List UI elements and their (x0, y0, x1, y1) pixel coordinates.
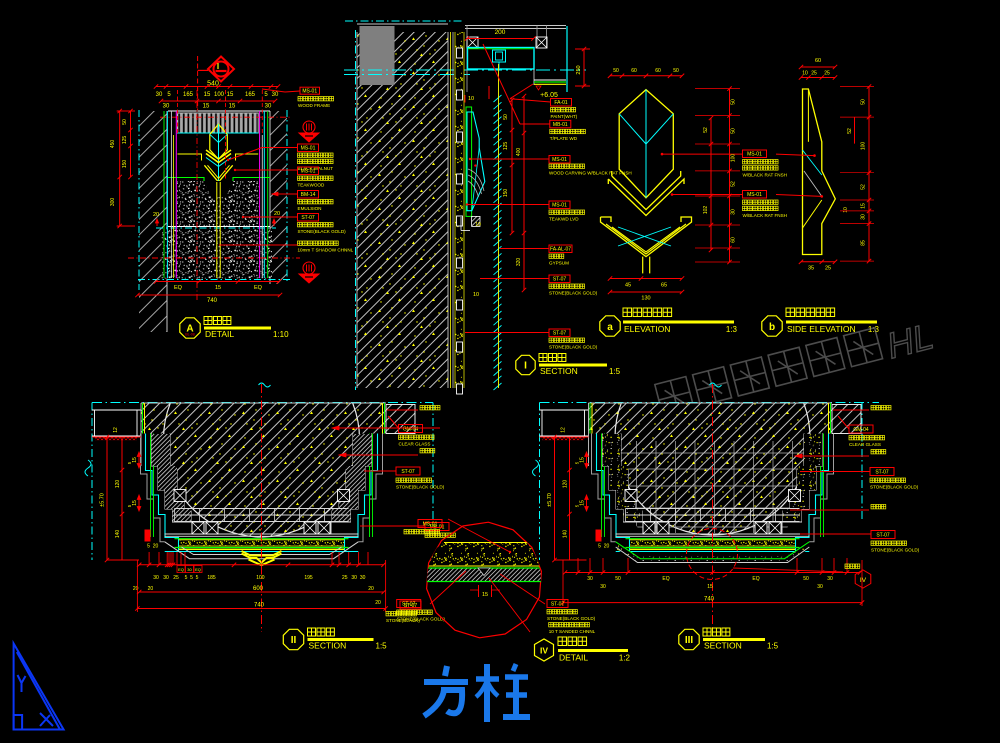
svg-text:50: 50 (803, 576, 809, 582)
svg-text:EQ: EQ (752, 576, 759, 582)
svg-text:30: 30 (156, 92, 163, 98)
svg-text:600: 600 (253, 586, 264, 592)
svg-text:MS-01: MS-01 (747, 192, 762, 198)
svg-text:15: 15 (132, 457, 138, 463)
svg-text:ST-07: ST-07 (401, 469, 415, 475)
svg-text:300: 300 (110, 198, 116, 207)
svg-text:60: 60 (815, 58, 821, 64)
svg-text:30: 30 (861, 214, 867, 220)
svg-text:MS-01: MS-01 (552, 157, 567, 163)
svg-text:1:2: 1:2 (619, 654, 631, 663)
svg-text:25: 25 (824, 71, 830, 77)
svg-text:15: 15 (229, 104, 236, 110)
svg-text:EQ: EQ (662, 576, 669, 582)
svg-text:ST-07: ST-07 (875, 470, 889, 476)
svg-text:GM-04: GM-04 (853, 427, 869, 433)
svg-text:+6.05: +6.05 (540, 92, 558, 99)
svg-text:140: 140 (563, 530, 569, 539)
svg-text:STONE(BLACK GOLD): STONE(BLACK GOLD) (871, 548, 920, 553)
svg-text:15: 15 (204, 92, 211, 98)
svg-text:50: 50 (673, 68, 679, 74)
svg-text:ST-07: ST-07 (551, 602, 565, 608)
svg-text:30: 30 (163, 575, 169, 581)
svg-text:20: 20 (604, 544, 610, 550)
svg-text:125: 125 (503, 142, 509, 151)
svg-text:30: 30 (351, 575, 357, 581)
svg-text:ST-07: ST-07 (553, 331, 567, 337)
svg-text:50: 50 (615, 576, 621, 582)
svg-text:30: 30 (817, 584, 823, 590)
svg-text:TEAKWOOD: TEAKWOOD (298, 183, 325, 188)
svg-text:185: 185 (207, 575, 216, 581)
svg-text:12: 12 (561, 427, 567, 433)
svg-text:CLEAR GLASS: CLEAR GLASS (849, 442, 881, 447)
svg-text:STONE(BLACK GOLD): STONE(BLACK GOLD) (549, 291, 598, 296)
svg-text:FA-01: FA-01 (554, 100, 568, 106)
svg-text:III: III (685, 635, 694, 646)
svg-text:120: 120 (115, 480, 121, 489)
svg-text:100: 100 (256, 575, 265, 581)
svg-text:200: 200 (495, 29, 506, 36)
svg-text:15: 15 (707, 584, 713, 590)
svg-text:b: b (769, 322, 775, 333)
svg-text:1:5: 1:5 (376, 642, 388, 651)
svg-text:30: 30 (600, 584, 606, 590)
svg-text:30: 30 (187, 567, 192, 572)
svg-text:10 T SANDED CHNNL: 10 T SANDED CHNNL (549, 629, 596, 634)
svg-text:MS-01: MS-01 (301, 169, 316, 175)
svg-text:ST-07: ST-07 (876, 533, 890, 539)
svg-text:MS-01: MS-01 (423, 522, 438, 528)
svg-text:IV: IV (540, 646, 548, 656)
svg-text:WOOD CARVING W/BLACK RAT FNSH: WOOD CARVING W/BLACK RAT FNSH (549, 171, 632, 176)
svg-text:50: 50 (503, 114, 509, 120)
svg-text:100: 100 (861, 142, 867, 151)
svg-text:52: 52 (731, 181, 737, 187)
svg-text:15: 15 (580, 500, 586, 506)
svg-text:20: 20 (375, 600, 381, 606)
svg-text:52: 52 (861, 184, 867, 190)
svg-text:5: 5 (598, 544, 601, 550)
svg-text:±5.70: ±5.70 (547, 493, 553, 507)
svg-text:ST-07: ST-07 (301, 215, 315, 221)
svg-text:±5.70: ±5.70 (100, 493, 106, 507)
svg-text:ELEVATION: ELEVATION (624, 324, 670, 334)
svg-text:SIDE ELEVATION: SIDE ELEVATION (787, 324, 856, 334)
svg-text:25: 25 (811, 71, 817, 77)
svg-text:CLEAR GLASS: CLEAR GLASS (399, 442, 431, 447)
svg-text:52: 52 (703, 127, 709, 133)
svg-text:100: 100 (214, 92, 225, 98)
svg-text:50: 50 (731, 128, 737, 134)
svg-text:DETAIL: DETAIL (559, 653, 588, 663)
svg-text:15: 15 (580, 457, 586, 463)
svg-text:10mm T SHADOW CHNNL: 10mm T SHADOW CHNNL (298, 248, 354, 253)
svg-text:30: 30 (731, 209, 737, 215)
svg-text:50: 50 (861, 99, 867, 105)
svg-text:10: 10 (475, 222, 481, 228)
svg-text:5: 5 (147, 544, 150, 550)
svg-text:MS-01: MS-01 (552, 203, 567, 209)
svg-text:20: 20 (368, 586, 374, 592)
svg-text:I: I (524, 361, 527, 372)
svg-text:250: 250 (576, 65, 582, 74)
svg-text:35: 35 (808, 266, 814, 272)
svg-text:15: 15 (861, 203, 867, 209)
svg-text:740: 740 (207, 298, 218, 304)
svg-text:30: 30 (587, 576, 593, 582)
svg-text:12: 12 (113, 427, 119, 433)
svg-text:15: 15 (227, 92, 234, 98)
svg-text:120: 120 (563, 480, 569, 489)
svg-text:DETAIL: DETAIL (205, 329, 234, 339)
svg-text:TEAKWD LVD: TEAKWD LVD (549, 217, 579, 222)
svg-text:STONE(BLACK): STONE(BLACK) (386, 618, 420, 623)
svg-text:20: 20 (153, 544, 159, 550)
svg-text:STONE(BLACK GOLD): STONE(BLACK GOLD) (547, 616, 596, 621)
svg-text:140: 140 (115, 530, 121, 539)
svg-text:20: 20 (148, 586, 154, 592)
svg-text:10: 10 (843, 207, 849, 213)
svg-text:MS-01: MS-01 (302, 88, 317, 94)
svg-text:1:5: 1:5 (767, 642, 779, 651)
svg-text:195: 195 (304, 575, 313, 581)
svg-text:PAINT(WHT): PAINT(WHT) (551, 114, 578, 119)
svg-text:EQ: EQ (178, 567, 184, 572)
svg-text:150: 150 (122, 160, 128, 169)
svg-text:SECTION: SECTION (309, 641, 347, 651)
svg-text:125: 125 (122, 136, 128, 145)
svg-text:30: 30 (272, 92, 279, 98)
svg-text:T/PLATE WD: T/PLATE WD (550, 136, 578, 141)
svg-text:ST-07: ST-07 (404, 603, 418, 609)
svg-text:EQ: EQ (195, 567, 201, 572)
svg-text:10: 10 (473, 292, 479, 298)
svg-text:SECTION: SECTION (540, 366, 578, 376)
svg-text:30: 30 (153, 575, 159, 581)
svg-text:5: 5 (196, 575, 199, 581)
svg-text:50: 50 (613, 68, 619, 74)
svg-text:IV: IV (860, 577, 867, 584)
svg-text:60: 60 (731, 237, 737, 243)
svg-text:STONE(BLACK GOLD): STONE(BLACK GOLD) (870, 485, 919, 490)
svg-text:150: 150 (503, 189, 509, 198)
svg-text:740: 740 (254, 603, 265, 609)
svg-text:400: 400 (516, 148, 522, 157)
svg-text:740: 740 (704, 597, 715, 603)
svg-text:5: 5 (185, 575, 188, 581)
svg-text:30: 30 (163, 104, 170, 110)
svg-text:1:5: 1:5 (609, 367, 621, 376)
svg-text:25: 25 (825, 266, 831, 272)
svg-text:ST-07: ST-07 (553, 277, 567, 283)
svg-text:EQ: EQ (174, 285, 183, 291)
svg-text:FA-AL-07: FA-AL-07 (550, 247, 571, 253)
svg-text:STONE(BLACK GOLD): STONE(BLACK GOLD) (549, 345, 598, 350)
svg-text:60: 60 (631, 68, 637, 74)
svg-text:a: a (607, 322, 613, 333)
svg-text:20: 20 (153, 212, 159, 218)
svg-text:20: 20 (274, 211, 280, 217)
svg-text:W/BLACK RAT FNSH: W/BLACK RAT FNSH (743, 172, 788, 177)
svg-text:25: 25 (173, 575, 179, 581)
svg-text:MS-01: MS-01 (747, 152, 762, 158)
svg-text:50: 50 (731, 99, 737, 105)
svg-text:45: 45 (625, 283, 631, 289)
svg-text:15: 15 (215, 285, 221, 291)
svg-text:1:3: 1:3 (726, 325, 738, 334)
svg-text:MB-01: MB-01 (553, 122, 568, 128)
svg-text:85: 85 (861, 240, 867, 246)
svg-text:65: 65 (661, 283, 667, 289)
svg-text:320: 320 (516, 258, 522, 267)
svg-text:MS-01: MS-01 (301, 146, 316, 152)
svg-text:10: 10 (468, 96, 474, 102)
svg-text:II: II (291, 635, 297, 646)
svg-text:1:10: 1:10 (273, 330, 289, 339)
svg-text:60: 60 (655, 68, 661, 74)
svg-text:450: 450 (110, 140, 116, 149)
svg-text:25: 25 (342, 575, 348, 581)
svg-text:165: 165 (245, 92, 256, 98)
svg-text:EMULSION: EMULSION (298, 206, 322, 211)
svg-text:100: 100 (731, 154, 737, 163)
svg-text:30: 30 (827, 576, 833, 582)
svg-text:SECTION: SECTION (704, 641, 742, 651)
svg-text:STONE(BLACK GOLD): STONE(BLACK GOLD) (396, 485, 445, 490)
svg-text:30: 30 (265, 104, 272, 110)
svg-text:15: 15 (482, 592, 488, 598)
svg-text:GYPSUM: GYPSUM (549, 261, 569, 266)
svg-text:30: 30 (360, 575, 366, 581)
svg-text:165: 165 (183, 92, 194, 98)
svg-text:5: 5 (190, 575, 193, 581)
svg-text:WOOD FRAME: WOOD FRAME (298, 103, 330, 108)
svg-text:15: 15 (132, 500, 138, 506)
svg-text:BM-14: BM-14 (301, 192, 316, 198)
svg-text:50: 50 (122, 119, 128, 125)
svg-text:52: 52 (847, 128, 853, 134)
svg-text:15: 15 (203, 104, 210, 110)
svg-text:BL-08: BL-08 (185, 333, 195, 337)
svg-text:W/BLACK RAT FNSH: W/BLACK RAT FNSH (743, 213, 788, 218)
svg-text:102: 102 (703, 206, 709, 215)
svg-text:130: 130 (641, 296, 650, 302)
svg-text:STONE(BLACK GOLD): STONE(BLACK GOLD) (298, 229, 347, 234)
svg-text:EQ: EQ (254, 285, 263, 291)
